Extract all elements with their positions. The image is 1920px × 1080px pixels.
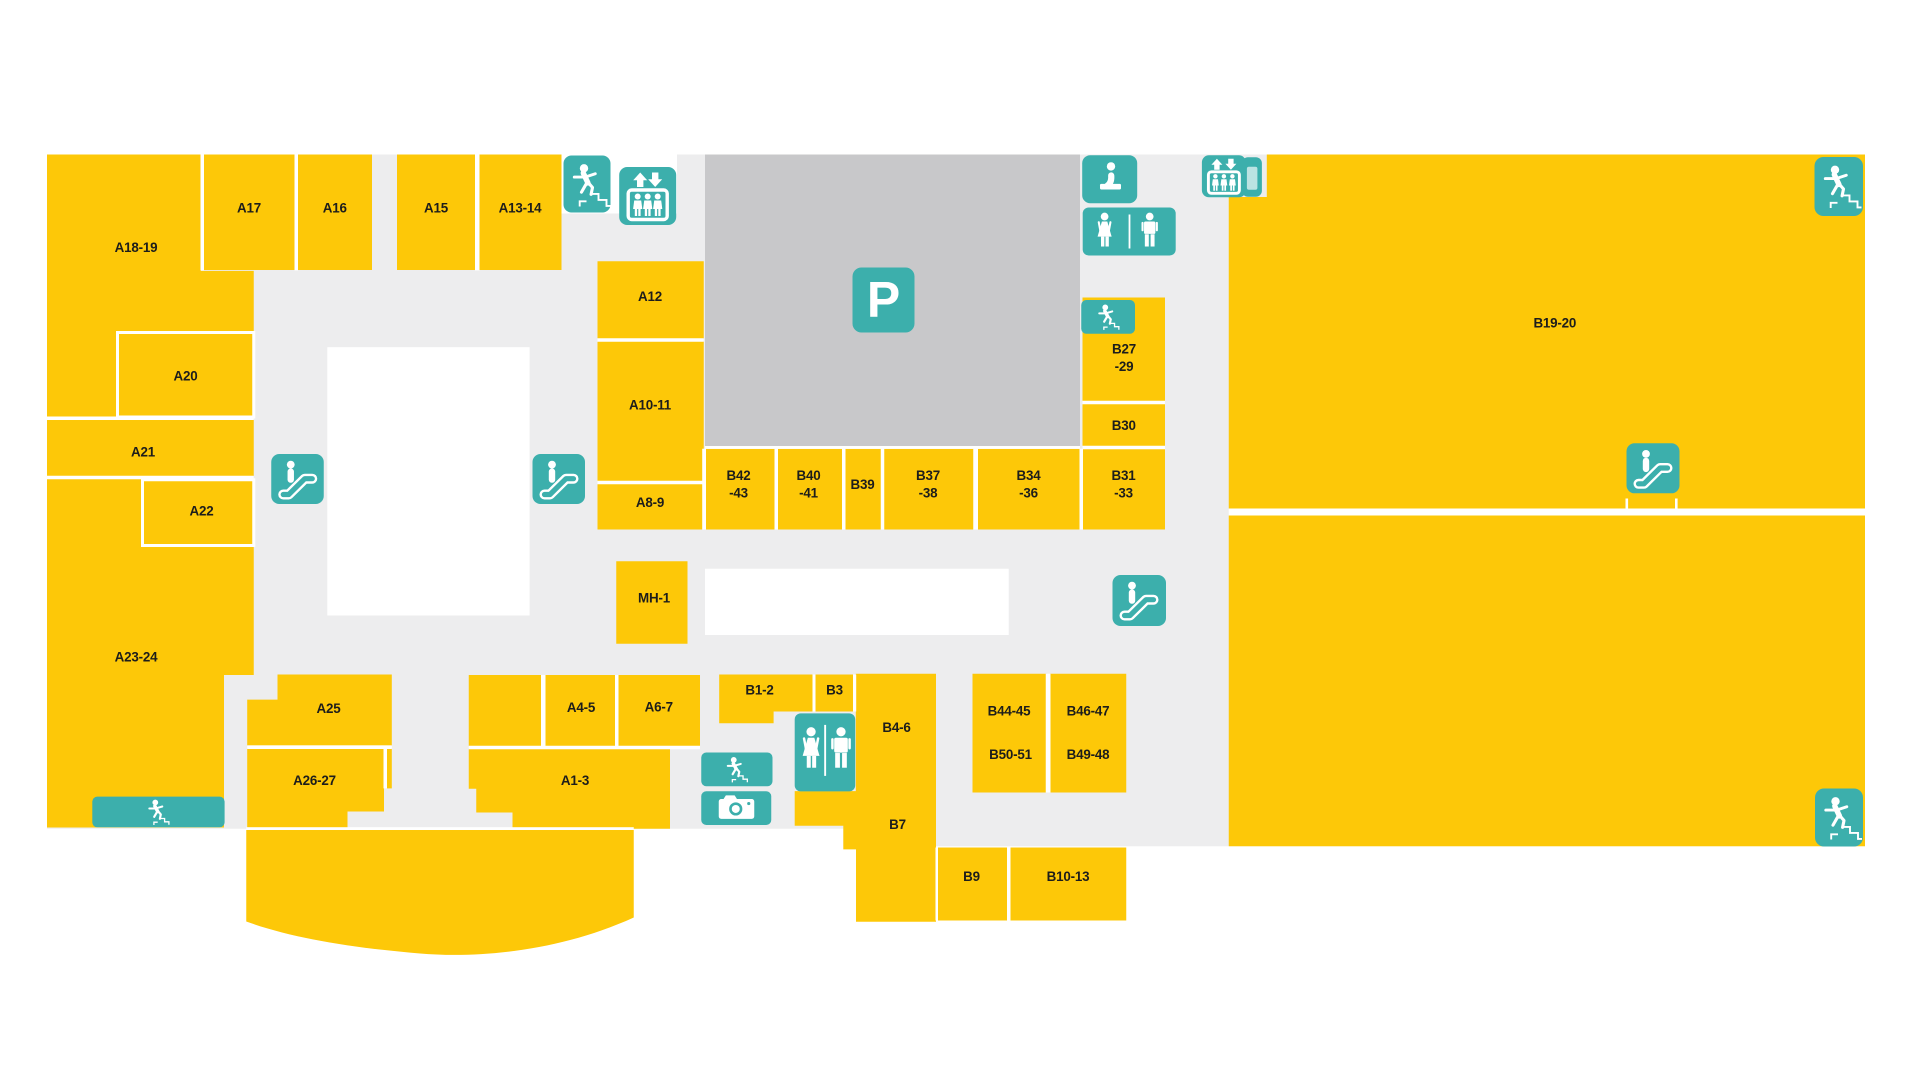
svg-text:A12: A12 xyxy=(638,289,662,304)
svg-text:A23-24: A23-24 xyxy=(115,650,158,665)
svg-text:B4-6: B4-6 xyxy=(882,720,910,735)
svg-text:B19-20: B19-20 xyxy=(1533,316,1576,331)
svg-text:B9: B9 xyxy=(963,869,980,884)
svg-text:A13-14: A13-14 xyxy=(499,201,542,216)
svg-text:A21: A21 xyxy=(131,445,156,460)
svg-text:B39: B39 xyxy=(851,477,875,492)
svg-text:A26-27: A26-27 xyxy=(293,773,336,788)
svg-text:B3: B3 xyxy=(826,683,843,698)
svg-text:B1-2: B1-2 xyxy=(745,683,773,698)
svg-text:B44-45: B44-45 xyxy=(988,704,1031,719)
svg-text:A8-9: A8-9 xyxy=(636,495,664,510)
svg-text:A20: A20 xyxy=(174,369,198,384)
svg-text:B49-48: B49-48 xyxy=(1067,747,1110,762)
svg-text:MH-1: MH-1 xyxy=(638,591,671,606)
svg-text:A16: A16 xyxy=(323,201,347,216)
svg-text:A10-11: A10-11 xyxy=(629,398,672,413)
svg-text:A25: A25 xyxy=(317,701,342,716)
svg-text:B46-47: B46-47 xyxy=(1067,704,1110,719)
svg-text:P: P xyxy=(867,272,900,328)
svg-text:A15: A15 xyxy=(424,201,449,216)
svg-text:A1-3: A1-3 xyxy=(561,773,589,788)
svg-text:A4-5: A4-5 xyxy=(567,700,596,715)
svg-text:A18-19: A18-19 xyxy=(115,240,158,255)
svg-text:B10-13: B10-13 xyxy=(1047,869,1090,884)
svg-text:A6-7: A6-7 xyxy=(645,700,673,715)
svg-text:B30: B30 xyxy=(1112,418,1136,433)
svg-text:A17: A17 xyxy=(237,201,261,216)
svg-text:B7: B7 xyxy=(889,817,906,832)
svg-text:B50-51: B50-51 xyxy=(989,747,1032,762)
svg-text:A22: A22 xyxy=(190,504,214,519)
